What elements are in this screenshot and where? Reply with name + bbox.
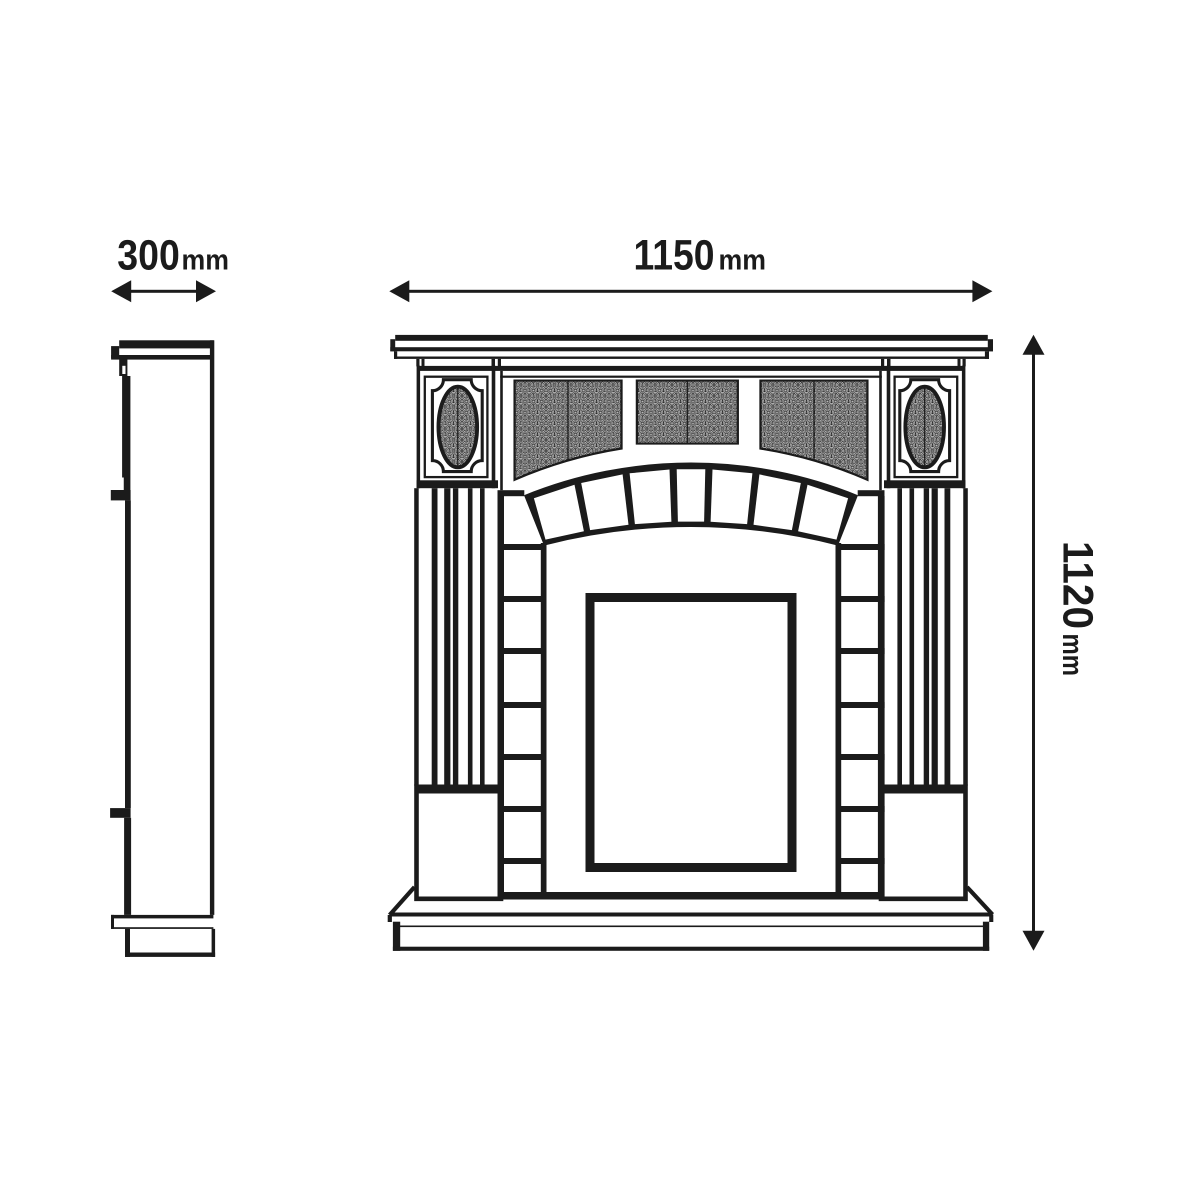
svg-text:300: 300 <box>117 233 180 280</box>
svg-text:1120: 1120 <box>1054 541 1101 629</box>
svg-text:mm: mm <box>1056 634 1088 677</box>
svg-text:1150: 1150 <box>634 233 715 280</box>
svg-text:mm: mm <box>719 245 767 277</box>
svg-text:mm: mm <box>182 245 230 277</box>
